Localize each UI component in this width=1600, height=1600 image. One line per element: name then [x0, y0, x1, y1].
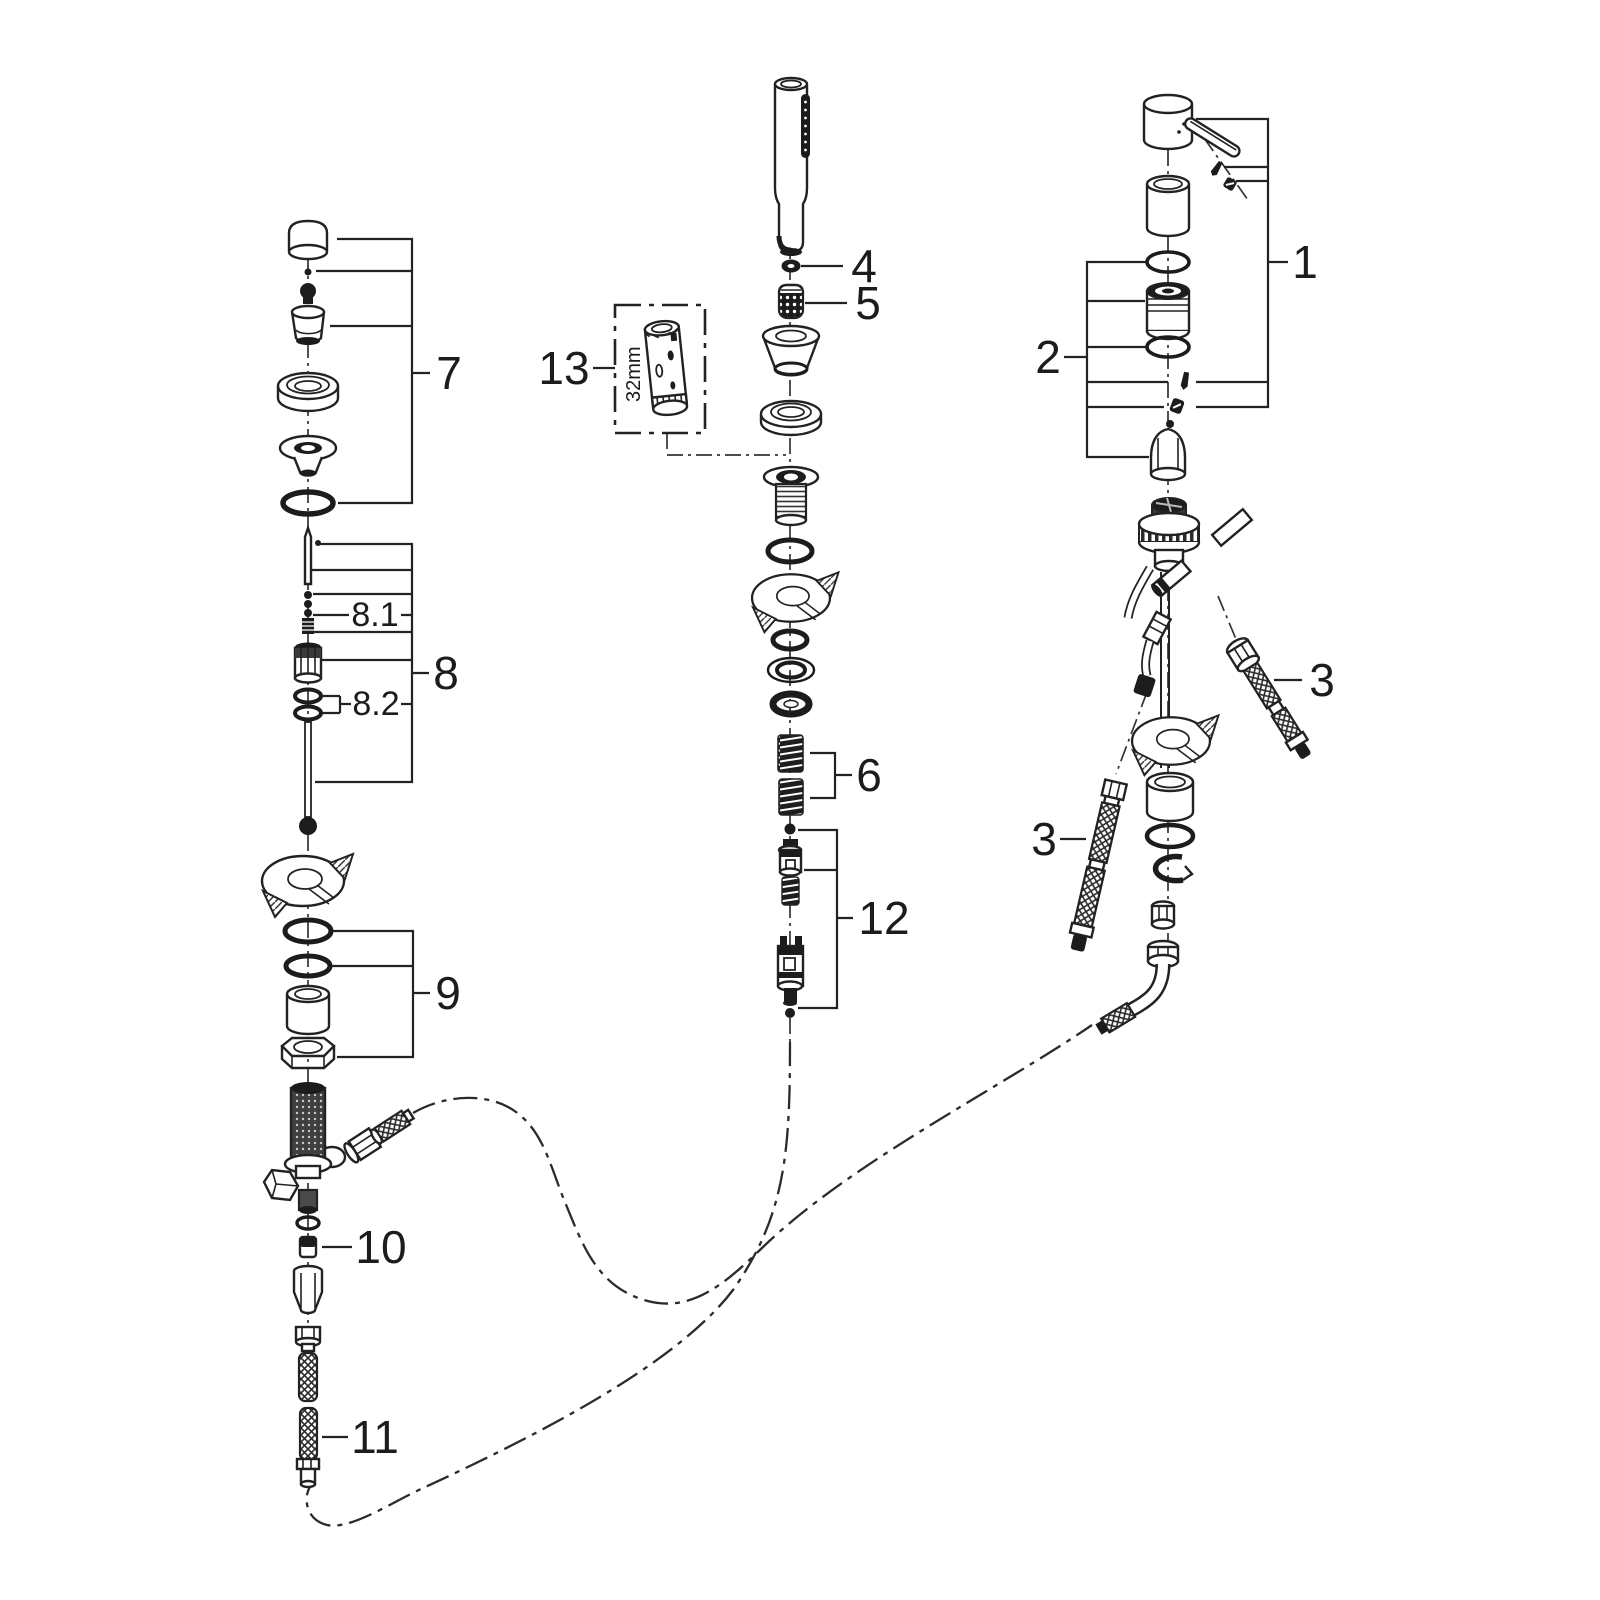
cartridge-pin — [1180, 372, 1190, 391]
cartridge-screw — [1169, 397, 1185, 414]
check-valve-piston-2 — [778, 936, 803, 1006]
waste-cartridge — [295, 643, 321, 683]
callout-2-label: 2 — [1035, 331, 1061, 383]
wand-o-ring — [782, 260, 801, 273]
drain-flange — [280, 436, 336, 477]
callout-3-left-label: 3 — [1031, 813, 1057, 865]
callout-8-label: 8 — [433, 647, 459, 699]
mixer-handle — [1144, 95, 1241, 159]
callout-8-1-label: 8.1 — [351, 596, 398, 634]
hand-shower-wand — [775, 78, 810, 256]
socket-tool — [644, 319, 688, 416]
rod-ribbed-segment — [302, 618, 314, 634]
callout-9-bracket — [332, 931, 430, 1057]
check-valve-spring — [782, 877, 799, 905]
popup-rod-top — [305, 528, 321, 584]
tool-inset: 32mm — [615, 305, 705, 433]
shower-cone-socket — [763, 326, 819, 375]
washer-ring — [768, 658, 814, 682]
mixer-cartridge — [1147, 283, 1189, 339]
knob-cap — [289, 221, 327, 259]
callout-6-label: 6 — [856, 749, 882, 801]
mounting-horseshoe-right — [1132, 715, 1218, 775]
wand-filter-insert — [779, 285, 803, 318]
shower-flange-ring — [761, 401, 821, 435]
spacer-sleeve-right — [1147, 773, 1193, 821]
check-valve-o-ring-bottom — [785, 1008, 795, 1018]
hook-washer — [1156, 857, 1192, 881]
callout-12-bracket — [798, 830, 853, 1008]
callout-9-label: 9 — [435, 967, 461, 1019]
threaded-socket — [764, 467, 818, 525]
right-column-parts — [1066, 95, 1316, 1036]
valve-side-connector — [342, 1105, 417, 1164]
left-column-parts — [262, 221, 417, 1487]
callout-5-label: 5 — [855, 277, 881, 329]
callout-11-label: 11 — [351, 1411, 399, 1463]
callout-13-label: 13 — [538, 342, 589, 394]
callout-6-bracket — [810, 753, 852, 798]
supply-hose-3-right — [1224, 635, 1316, 763]
popup-long-rod — [305, 722, 311, 817]
spacer-sleeve — [287, 986, 329, 1034]
rod-beads — [304, 591, 312, 617]
small-nut — [1152, 902, 1174, 929]
callout-1-bracket — [1196, 119, 1288, 407]
tool-size-label: 32mm — [623, 346, 645, 402]
check-valve-o-ring-top — [785, 824, 796, 835]
middle-column-parts — [752, 78, 838, 1018]
callout-7-bracket — [316, 239, 430, 503]
seal-seat-ring — [773, 694, 809, 714]
exploded-diagram: 32mm — [0, 0, 1600, 1600]
axis-base-to-hose — [1218, 596, 1238, 644]
callout-12-label: 12 — [858, 892, 909, 944]
exploded-diagram-page: 32mm — [0, 0, 1600, 1600]
supply-hose — [297, 1353, 319, 1487]
knob-ball — [300, 283, 316, 304]
rod-ball-end — [299, 817, 317, 835]
mounting-horseshoe-middle — [752, 572, 838, 632]
diverter-valve-body — [264, 1082, 417, 1214]
callout-8-bracket — [312, 544, 429, 782]
base-o-ring-right — [1147, 825, 1193, 847]
check-valve-piston-1 — [779, 839, 801, 876]
handle-set-screw — [1222, 176, 1237, 191]
springs-pair — [778, 735, 803, 815]
handle-pin — [1209, 160, 1223, 177]
hose-top-fitting — [296, 1327, 320, 1351]
compression-nut — [294, 1266, 322, 1313]
callout-1-label: 1 — [1292, 236, 1318, 288]
hose-routing-curve-valve-to-elbow — [413, 1025, 1092, 1304]
cartridge-dome-cap — [1151, 420, 1185, 480]
knob-cone-seat — [292, 306, 324, 345]
knob-pin — [305, 269, 312, 276]
mounting-flange-ring — [278, 373, 338, 411]
outlet-insert — [300, 1237, 316, 1257]
callout-8-2-label: 8.2 — [352, 685, 399, 723]
handle-sleeve-cap — [1147, 176, 1189, 236]
base-right-stub — [1212, 509, 1252, 545]
supply-hose-3-left — [1066, 780, 1126, 954]
callout-10-label: 10 — [355, 1221, 406, 1273]
mounting-hex-nut — [282, 1038, 334, 1068]
elbow-connector — [1094, 941, 1178, 1036]
callout-7-label: 7 — [436, 347, 462, 399]
callout-3-right-label: 3 — [1309, 654, 1335, 706]
